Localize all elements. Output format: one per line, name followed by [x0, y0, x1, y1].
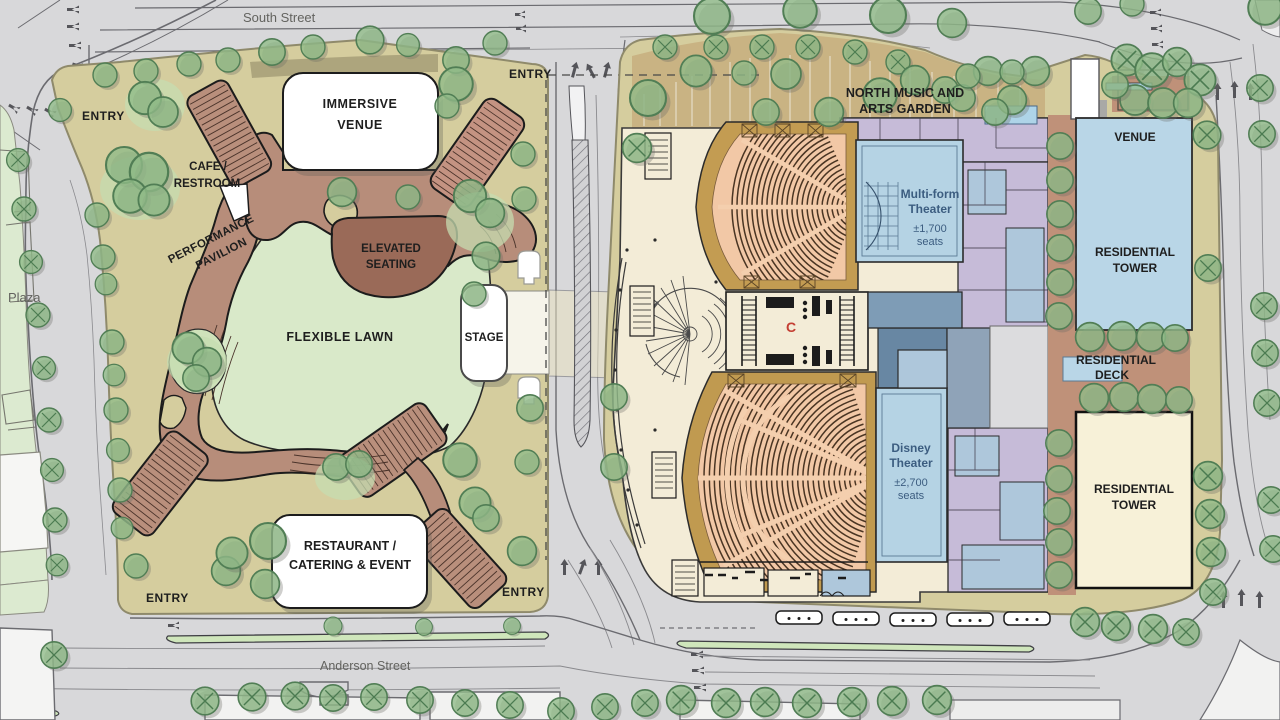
svg-text:IMMERSIVE: IMMERSIVE — [323, 97, 398, 111]
svg-text:VENUE: VENUE — [1114, 130, 1155, 144]
svg-text:ENTRY: ENTRY — [82, 109, 125, 123]
svg-text:±1,700: ±1,700 — [913, 223, 947, 235]
svg-text:Theater: Theater — [908, 202, 952, 216]
svg-text:STAGE: STAGE — [465, 332, 504, 344]
svg-text:ENTRY: ENTRY — [509, 67, 552, 81]
svg-text:Theater: Theater — [889, 456, 933, 470]
svg-text:seats: seats — [917, 236, 944, 248]
svg-text:ELEVATED: ELEVATED — [361, 243, 421, 255]
svg-text:Anderson Street: Anderson Street — [320, 659, 411, 673]
svg-text:RESIDENTIAL: RESIDENTIAL — [1076, 353, 1156, 367]
svg-text:SEATING: SEATING — [366, 259, 416, 271]
svg-text:C: C — [786, 319, 796, 335]
svg-text:seats: seats — [898, 490, 925, 502]
svg-text:ARTS GARDEN: ARTS GARDEN — [859, 102, 951, 116]
svg-text:TOWER: TOWER — [1112, 498, 1157, 512]
svg-text:ENTRY: ENTRY — [502, 585, 545, 599]
svg-text:RESTAURANT /: RESTAURANT / — [304, 539, 397, 553]
svg-text:Disney: Disney — [891, 441, 931, 455]
svg-text:CATERING & EVENT: CATERING & EVENT — [289, 558, 411, 572]
svg-text:South Street: South Street — [243, 10, 316, 25]
svg-text:RESIDENTIAL: RESIDENTIAL — [1094, 482, 1174, 496]
svg-text:RESIDENTIAL: RESIDENTIAL — [1095, 245, 1175, 259]
svg-text:Multi-form: Multi-form — [901, 187, 960, 201]
svg-text:±2,700: ±2,700 — [894, 477, 928, 489]
svg-text:TOWER: TOWER — [1113, 261, 1158, 275]
svg-text:DECK: DECK — [1095, 368, 1129, 382]
svg-text:ENTRY: ENTRY — [146, 591, 189, 605]
svg-text:NORTH MUSIC AND: NORTH MUSIC AND — [846, 86, 964, 100]
svg-text:RESTROOM: RESTROOM — [174, 178, 240, 190]
svg-text:VENUE: VENUE — [337, 118, 383, 132]
svg-text:CAFE /: CAFE / — [189, 161, 228, 173]
svg-text:FLEXIBLE LAWN: FLEXIBLE LAWN — [286, 330, 393, 344]
